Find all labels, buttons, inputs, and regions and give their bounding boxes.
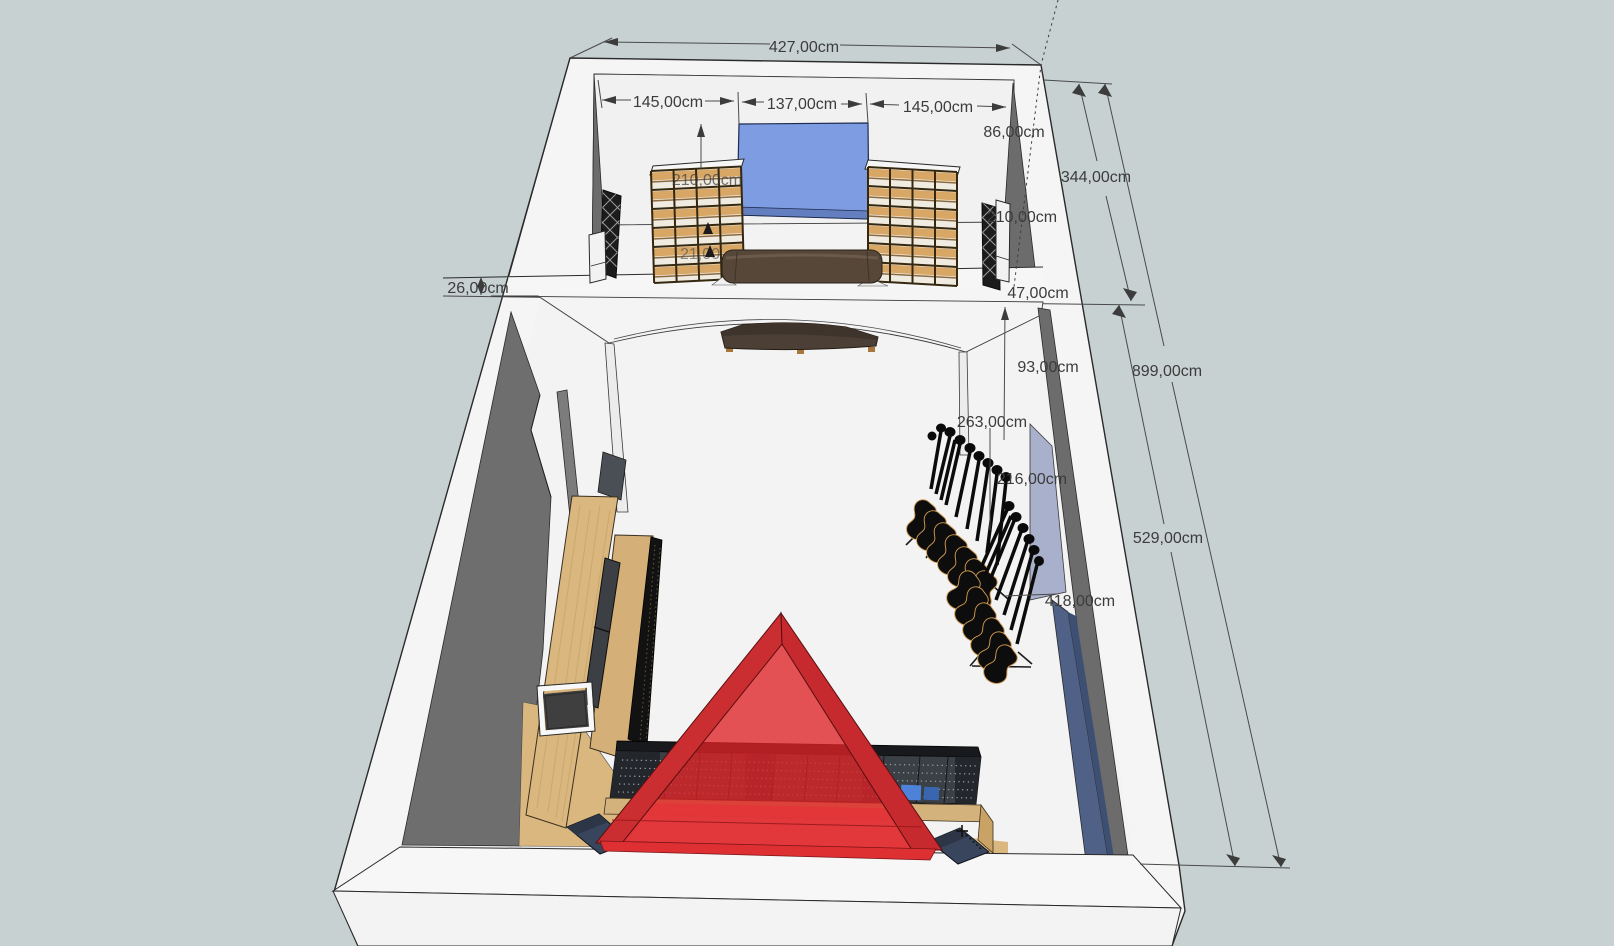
svg-text:26,00cm: 26,00cm	[447, 280, 508, 297]
svg-text:418,00cm: 418,00cm	[1045, 593, 1115, 610]
svg-text:145,00cm: 145,00cm	[633, 94, 703, 111]
svg-text:145,00cm: 145,00cm	[903, 99, 973, 116]
svg-text:86,00cm: 86,00cm	[983, 124, 1044, 141]
svg-text:899,00cm: 899,00cm	[1132, 363, 1202, 380]
svg-text:263,00cm: 263,00cm	[957, 414, 1027, 431]
svg-text:529,00cm: 529,00cm	[1133, 530, 1203, 547]
svg-text:137,00cm: 137,00cm	[767, 96, 837, 113]
svg-text:93,00cm: 93,00cm	[1017, 359, 1078, 376]
svg-text:344,00cm: 344,00cm	[1061, 169, 1131, 186]
svg-text:210,00cm: 210,00cm	[672, 172, 742, 189]
svg-text:216,00cm: 216,00cm	[997, 471, 1067, 488]
svg-text:21,00: 21,00	[680, 246, 720, 263]
svg-text:427,00cm: 427,00cm	[769, 39, 839, 56]
svg-text:47,00cm: 47,00cm	[1007, 285, 1068, 302]
svg-text:210,00cm: 210,00cm	[987, 209, 1057, 226]
